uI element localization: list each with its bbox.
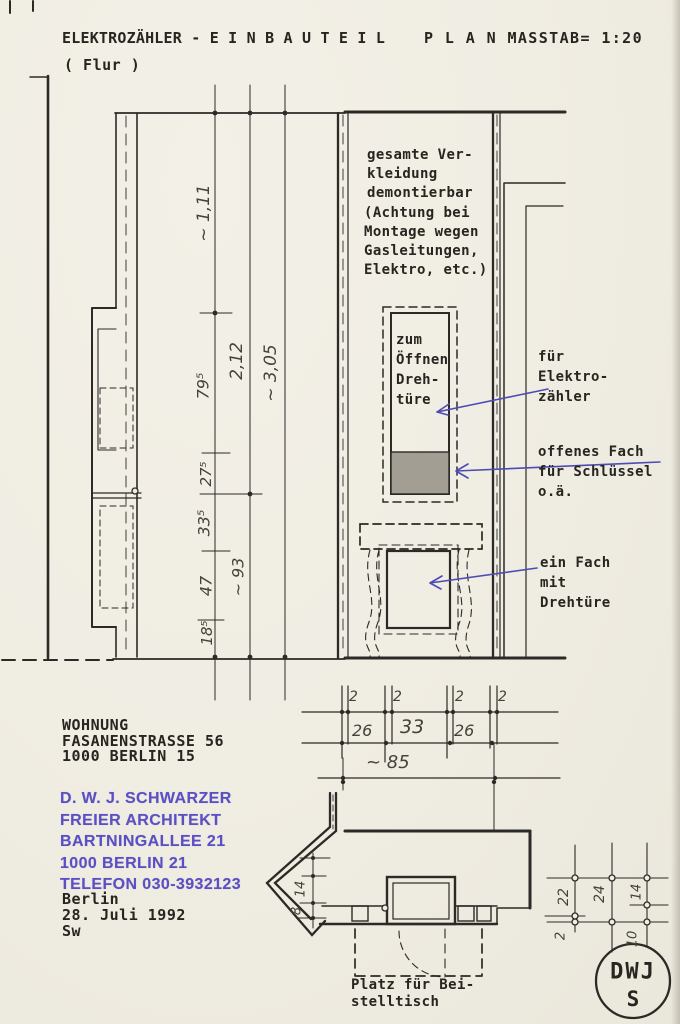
dim-plan-8: 8 xyxy=(290,907,305,915)
dim-grid-22: 22 xyxy=(556,888,572,906)
drawing-scale: P L A N MASSTAB= 1:20 xyxy=(424,29,643,47)
ceiling-line xyxy=(115,112,565,113)
dim-26-a: 26 xyxy=(352,721,372,740)
dim-2-a: 2 xyxy=(349,689,358,705)
dim-plan-14: 14 xyxy=(294,881,309,898)
scan-edge-shadow xyxy=(671,0,680,1024)
dim-grid-14: 14 xyxy=(630,884,645,901)
note-compartment: ein Fach mit Drehtüre xyxy=(540,553,611,613)
date-block: Berlin 28. Juli 1992 Sw xyxy=(62,891,186,939)
dim-93: ~ 93 xyxy=(229,558,248,597)
scanned-drawing-page: ELEKTROZÄHLER - E I N B A U T E I L P L … xyxy=(0,0,680,1024)
dim-33-5: 33⁵ xyxy=(195,510,214,537)
note-cladding: gesamte Ver- kleidung demontierbar xyxy=(367,146,473,203)
drawing-subtitle: ( Flur ) xyxy=(64,56,140,74)
door-swing-arc xyxy=(399,931,445,977)
address-block: WOHNUNG FASANENSTRASSE 56 1000 BERLIN 15 xyxy=(62,718,224,765)
architect-stamp: D. W. J. SCHWARZER FREIER ARCHITEKT BART… xyxy=(60,788,241,896)
dim-2-b: 2 xyxy=(393,689,402,705)
logo-letter: S xyxy=(627,987,640,1011)
drawing-title: ELEKTROZÄHLER - E I N B A U T E I L xyxy=(62,29,385,47)
dim-3-05: ~ 3,05 xyxy=(261,344,281,402)
dim-47: 47 xyxy=(197,576,216,596)
logo-initials: DWJ xyxy=(610,960,656,985)
dim-grid-2: 2 xyxy=(554,932,569,940)
dim-2-d: 2 xyxy=(498,689,507,705)
note-meter: für Elektro- zähler xyxy=(538,347,609,407)
dim-2-12: 2,12 xyxy=(227,342,247,380)
open-shelf-shaded xyxy=(391,452,449,494)
dim-grid-10: 10 xyxy=(626,931,641,948)
dim-85: ~ 85 xyxy=(366,752,410,773)
dim-grid-24: 24 xyxy=(592,885,608,903)
dim-26-b: 26 xyxy=(454,721,474,740)
side-table-outline xyxy=(355,929,482,976)
note-door-open: zum Öffnen Dreh- türe xyxy=(396,330,448,410)
table-legs-dashed xyxy=(366,550,472,657)
dim-79-5: 79⁵ xyxy=(194,373,213,400)
plan-caption-side-table: Platz für Bei- stelltisch xyxy=(351,977,475,1011)
dim-18-5: 18⁵ xyxy=(198,620,216,645)
side-view-wall-section xyxy=(10,1,141,658)
dim-1-11: ~ 1,11 xyxy=(194,184,214,242)
bottom-dimension-chain xyxy=(302,686,560,830)
dim-2-c: 2 xyxy=(455,689,464,705)
note-caution: (Achtung bei Montage wegen Gasleitungen,… xyxy=(364,204,488,280)
note-open-shelf: offenes Fach für Schlüssel o.ä. xyxy=(538,442,653,502)
dim-33: 33 xyxy=(400,716,424,738)
dim-27-5: 27⁵ xyxy=(197,461,215,486)
